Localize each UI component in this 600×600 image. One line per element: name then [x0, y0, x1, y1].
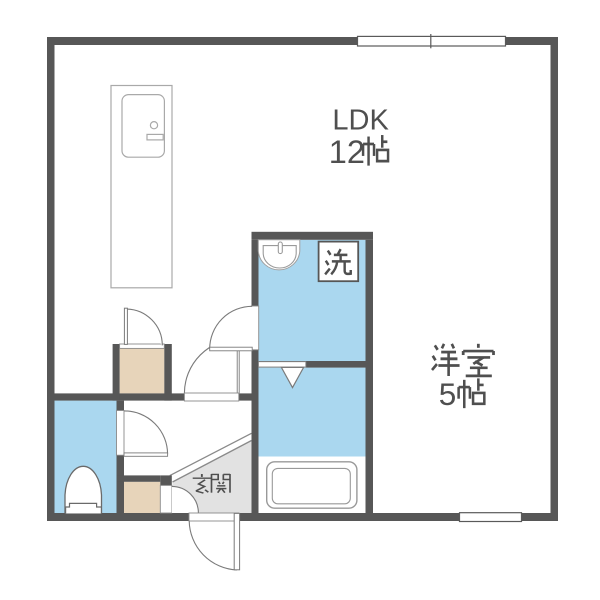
- svg-text:12: 12: [329, 134, 365, 170]
- svg-text:LDK: LDK: [332, 105, 389, 137]
- svg-text:5: 5: [439, 376, 457, 412]
